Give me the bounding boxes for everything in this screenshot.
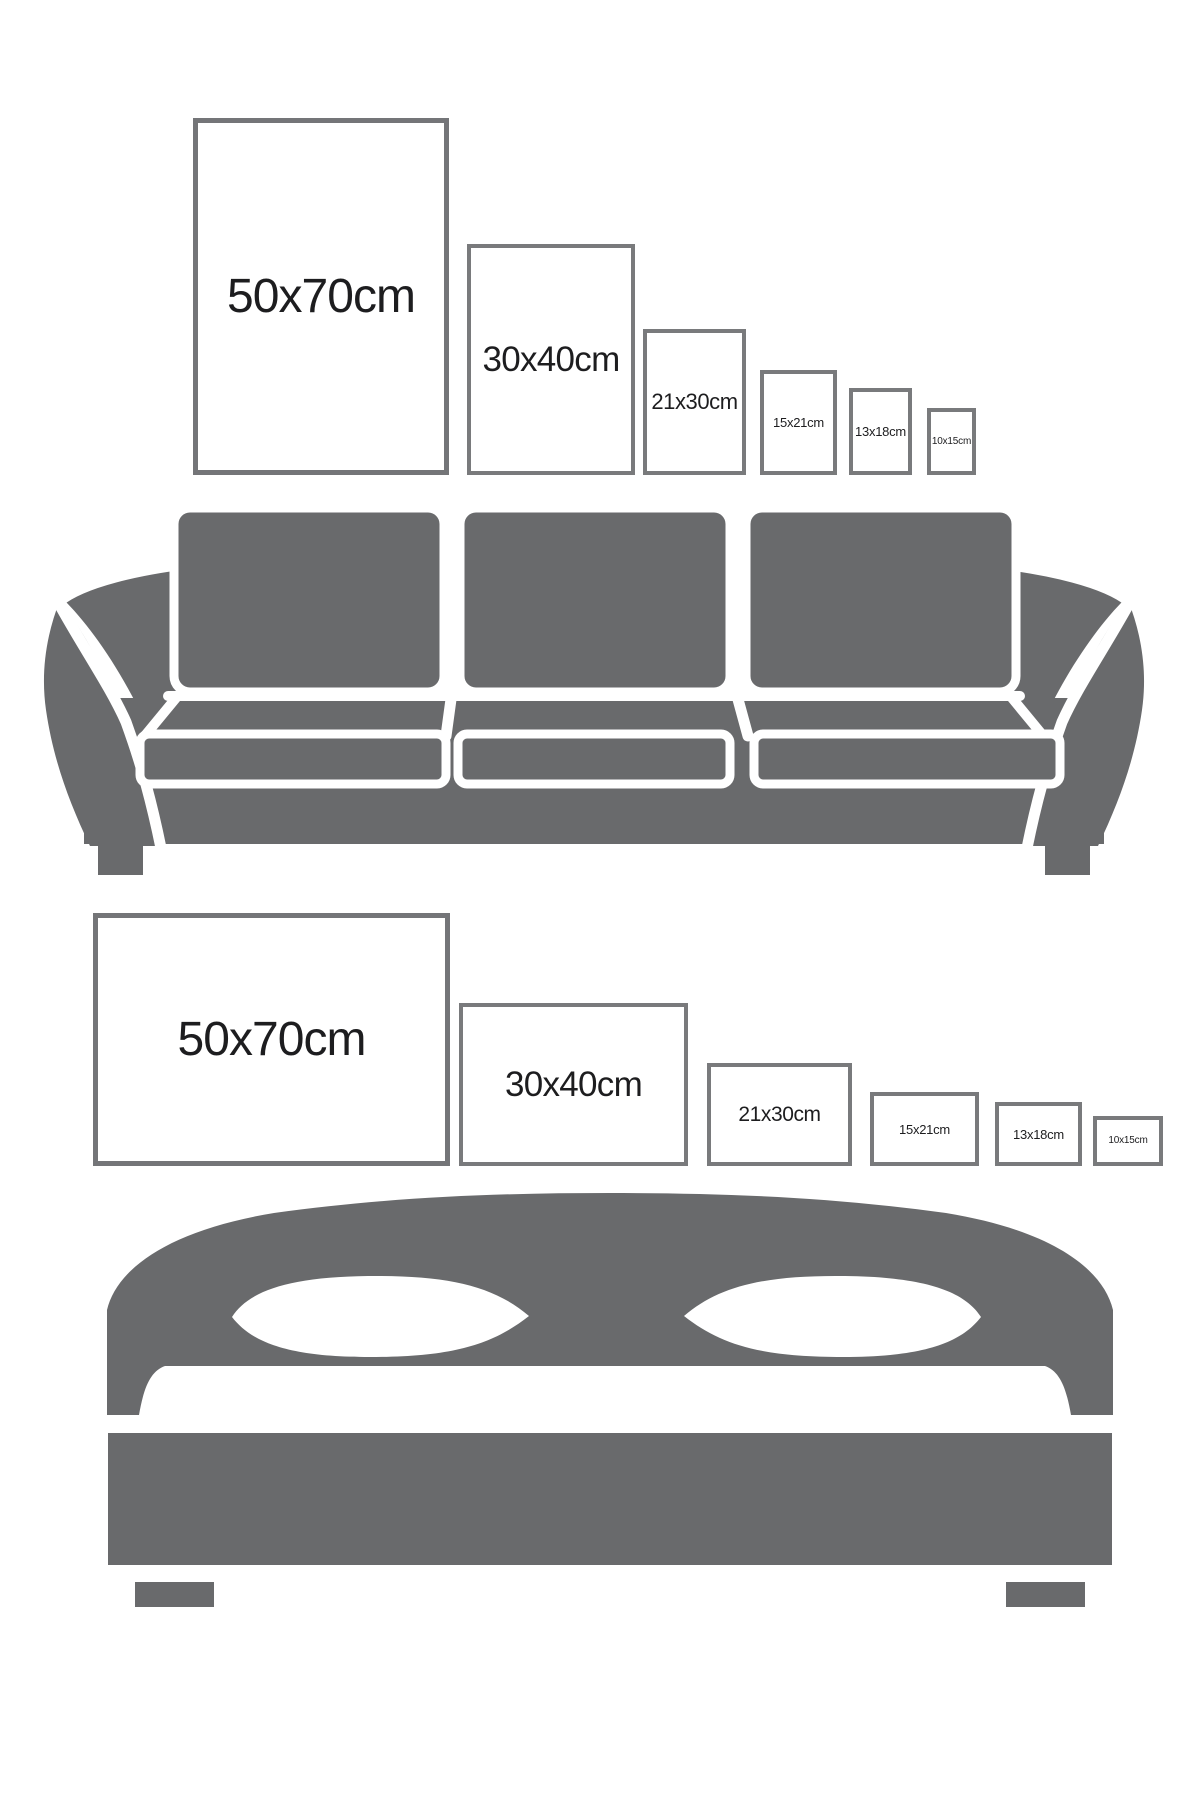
- size-frame-10x15-bed: 10x15cm: [1093, 1116, 1163, 1166]
- size-label: 50x70cm: [177, 1016, 365, 1064]
- size-label: 21x30cm: [738, 1104, 820, 1125]
- poster-size-guide: 50x70cm 30x40cm 21x30cm 15x21cm 13x18cm …: [0, 0, 1200, 1800]
- size-label: 30x40cm: [505, 1067, 642, 1102]
- size-label: 13x18cm: [1013, 1128, 1064, 1141]
- size-frame-13x18-bed: 13x18cm: [995, 1102, 1082, 1166]
- bed-size-chart: 50x70cm 30x40cm 21x30cm 15x21cm 13x18cm …: [0, 0, 1200, 1800]
- bed-icon: [0, 1180, 1200, 1620]
- size-label: 15x21cm: [899, 1123, 950, 1136]
- size-frame-30x40-bed: 30x40cm: [459, 1003, 688, 1166]
- size-frame-15x21-bed: 15x21cm: [870, 1092, 979, 1166]
- size-label: 10x15cm: [1108, 1136, 1147, 1146]
- size-frame-21x30-bed: 21x30cm: [707, 1063, 852, 1166]
- size-frame-50x70-bed: 50x70cm: [93, 913, 450, 1166]
